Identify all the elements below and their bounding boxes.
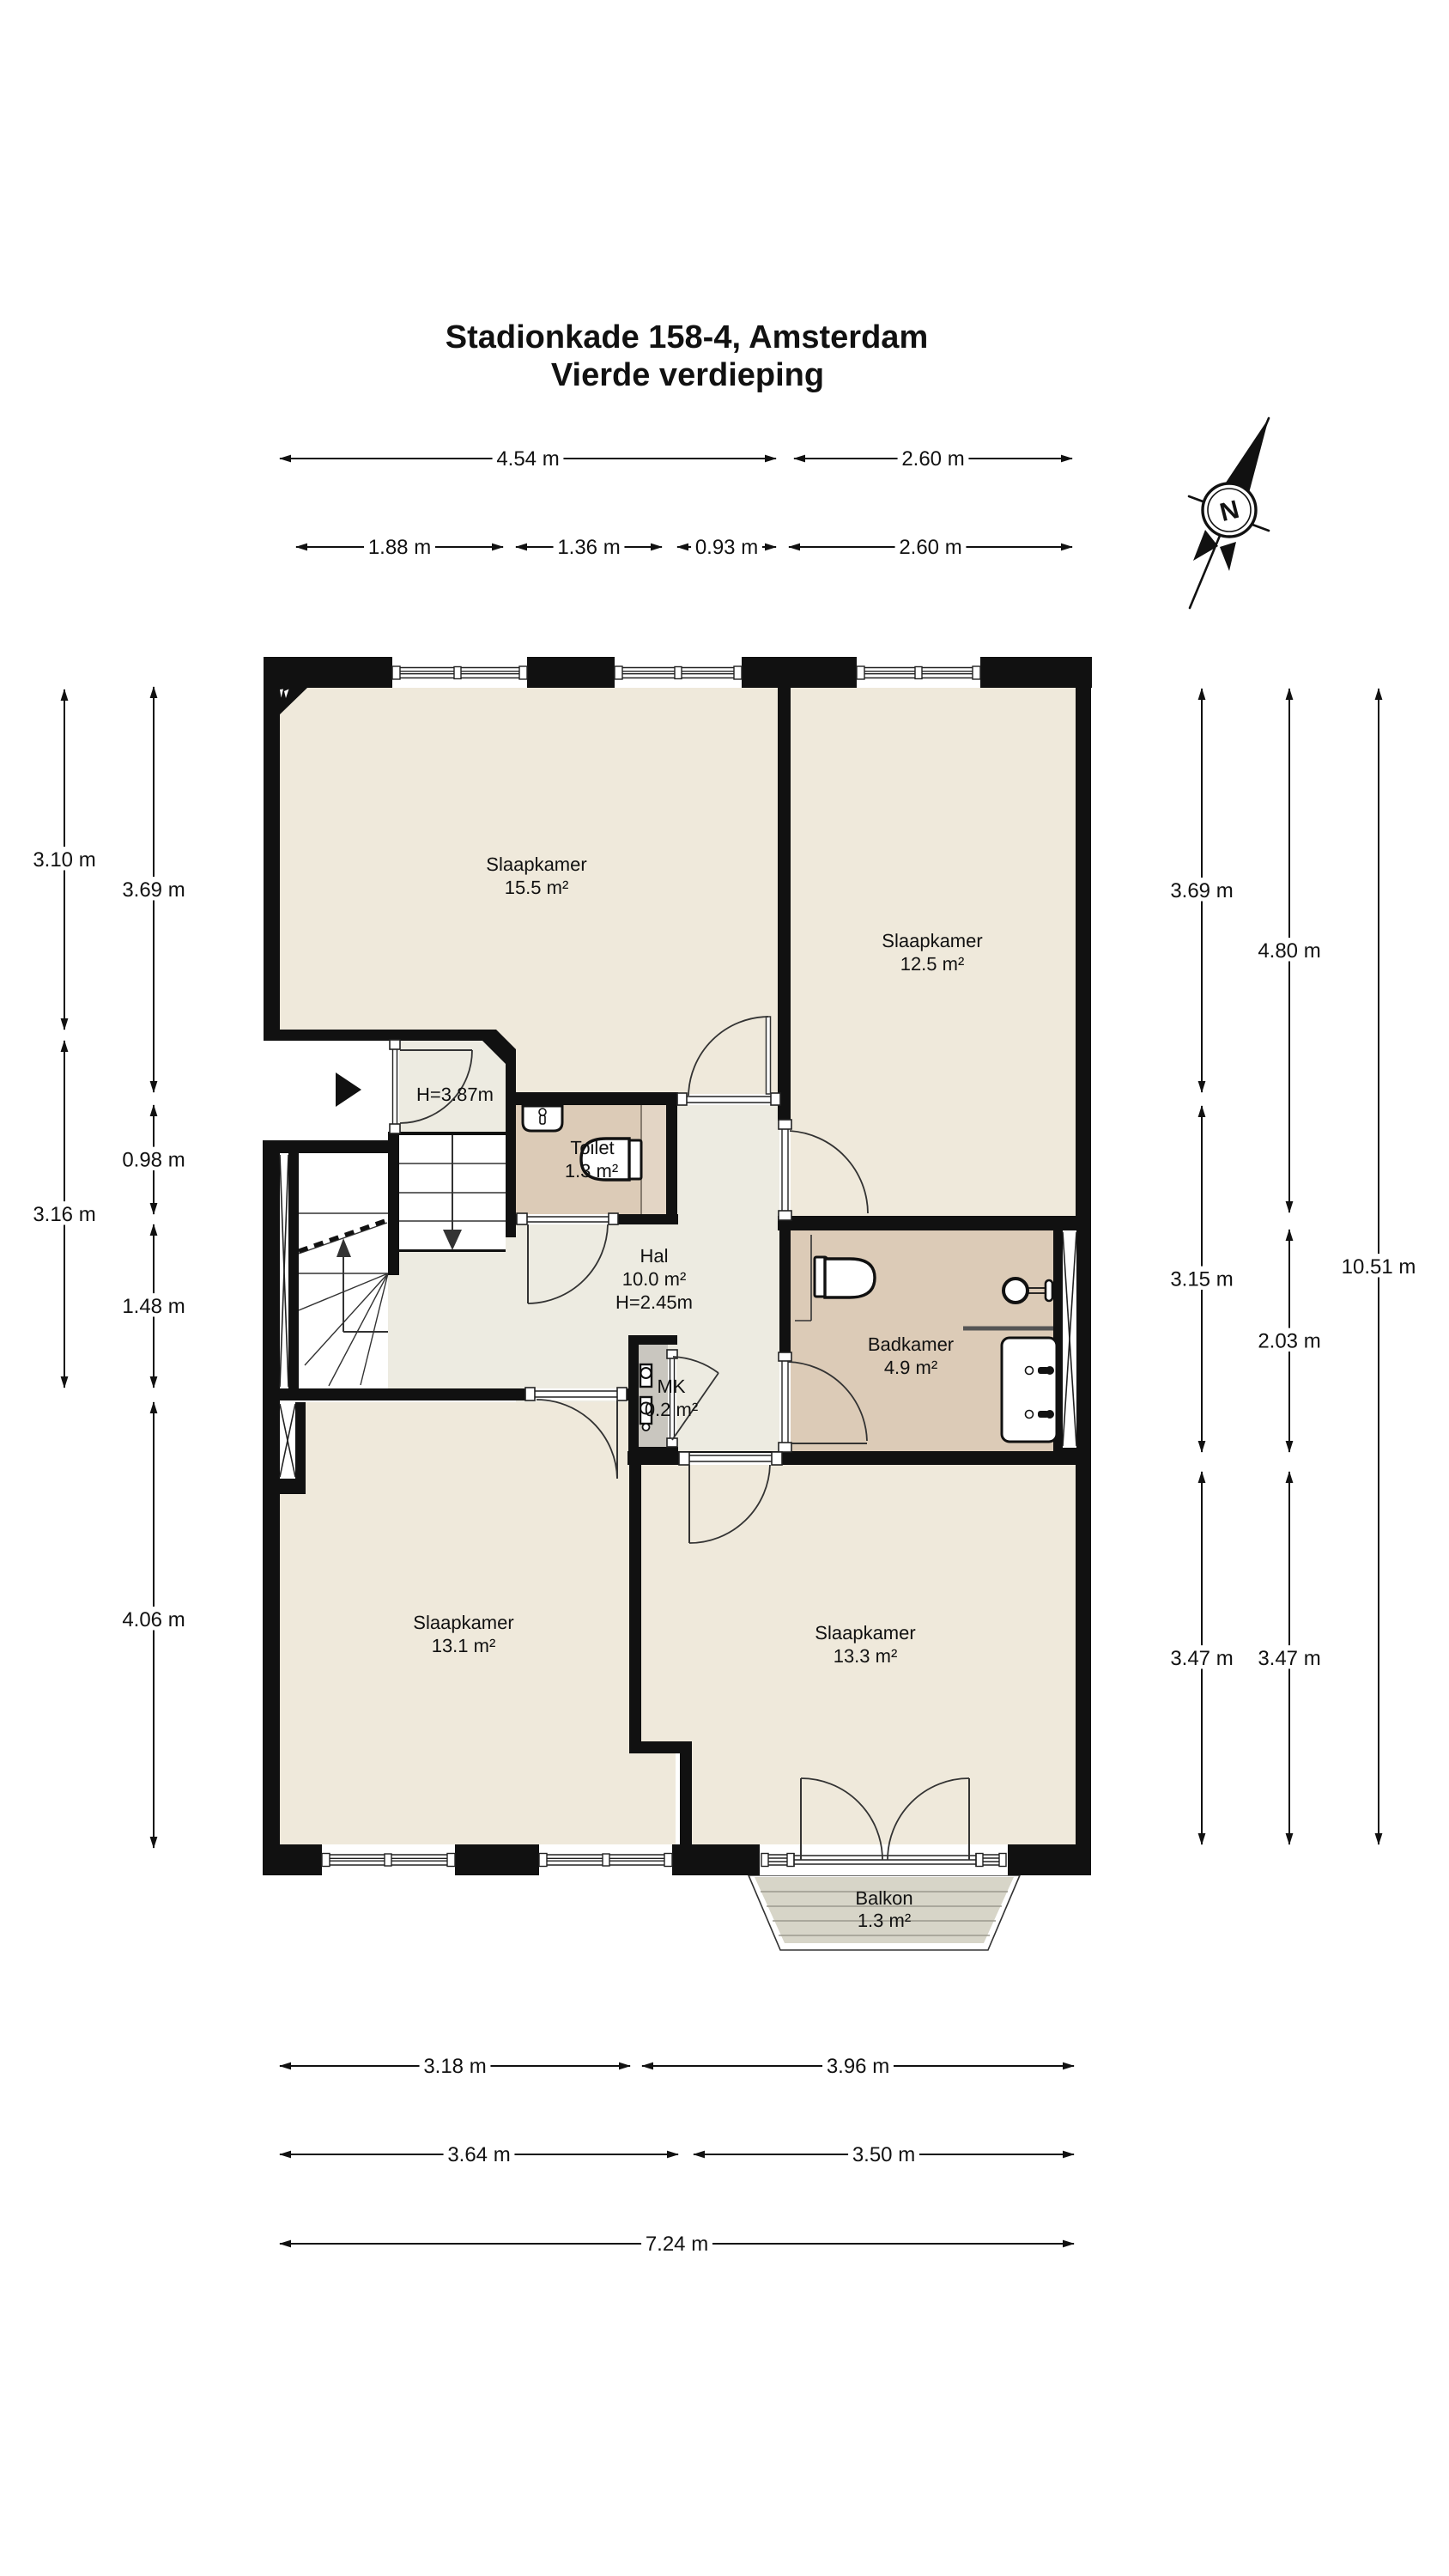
svg-text:15.5 m²: 15.5 m² bbox=[505, 877, 569, 898]
svg-text:Vierde verdieping: Vierde verdieping bbox=[551, 357, 824, 393]
svg-text:13.3 m²: 13.3 m² bbox=[834, 1645, 898, 1667]
svg-text:3.47 m: 3.47 m bbox=[1170, 1647, 1233, 1670]
svg-text:3.96 m: 3.96 m bbox=[827, 2055, 889, 2078]
svg-text:13.1 m²: 13.1 m² bbox=[432, 1635, 496, 1656]
svg-text:3.18 m: 3.18 m bbox=[423, 2055, 486, 2078]
svg-text:MK: MK bbox=[658, 1376, 686, 1397]
svg-text:Balkon: Balkon bbox=[855, 1887, 912, 1909]
svg-text:4.9 m²: 4.9 m² bbox=[884, 1357, 937, 1378]
svg-text:2.60 m: 2.60 m bbox=[899, 536, 961, 559]
svg-text:0.98 m: 0.98 m bbox=[122, 1149, 185, 1172]
svg-text:3.50 m: 3.50 m bbox=[852, 2143, 915, 2166]
svg-text:0.2 m²: 0.2 m² bbox=[645, 1399, 698, 1420]
svg-text:1.3 m²: 1.3 m² bbox=[565, 1160, 618, 1182]
svg-text:Stadionkade 158-4, Amsterdam: Stadionkade 158-4, Amsterdam bbox=[446, 319, 928, 355]
svg-text:H=3.87m: H=3.87m bbox=[416, 1084, 494, 1105]
svg-text:1.88 m: 1.88 m bbox=[368, 536, 431, 559]
svg-text:3.47 m: 3.47 m bbox=[1258, 1647, 1320, 1670]
svg-text:3.64 m: 3.64 m bbox=[447, 2143, 510, 2166]
svg-text:Slaapkamer: Slaapkamer bbox=[882, 930, 982, 951]
svg-text:10.0 m²: 10.0 m² bbox=[622, 1268, 687, 1290]
svg-text:12.5 m²: 12.5 m² bbox=[900, 953, 965, 975]
svg-text:10.51 m: 10.51 m bbox=[1342, 1255, 1416, 1279]
svg-text:4.06 m: 4.06 m bbox=[122, 1608, 185, 1631]
svg-text:3.69 m: 3.69 m bbox=[122, 878, 185, 902]
svg-text:3.16 m: 3.16 m bbox=[33, 1203, 95, 1226]
svg-text:H=2.45m: H=2.45m bbox=[615, 1291, 693, 1313]
svg-text:1.36 m: 1.36 m bbox=[557, 536, 620, 559]
svg-text:2.60 m: 2.60 m bbox=[901, 447, 964, 471]
svg-text:Toilet: Toilet bbox=[570, 1137, 614, 1158]
svg-text:Slaapkamer: Slaapkamer bbox=[815, 1622, 915, 1643]
svg-text:Slaapkamer: Slaapkamer bbox=[486, 854, 586, 875]
svg-text:2.03 m: 2.03 m bbox=[1258, 1330, 1320, 1353]
svg-text:3.15 m: 3.15 m bbox=[1170, 1268, 1233, 1291]
svg-text:1.48 m: 1.48 m bbox=[122, 1295, 185, 1318]
svg-text:0.93 m: 0.93 m bbox=[695, 536, 758, 559]
svg-text:4.54 m: 4.54 m bbox=[496, 447, 559, 471]
svg-text:4.80 m: 4.80 m bbox=[1258, 939, 1320, 963]
svg-text:3.10 m: 3.10 m bbox=[33, 848, 95, 872]
svg-text:3.69 m: 3.69 m bbox=[1170, 879, 1233, 902]
svg-text:1.3 m²: 1.3 m² bbox=[858, 1910, 911, 1931]
svg-text:Hal: Hal bbox=[640, 1245, 668, 1267]
svg-text:Badkamer: Badkamer bbox=[868, 1334, 954, 1355]
svg-text:7.24 m: 7.24 m bbox=[646, 2233, 708, 2256]
svg-text:Slaapkamer: Slaapkamer bbox=[413, 1612, 513, 1633]
